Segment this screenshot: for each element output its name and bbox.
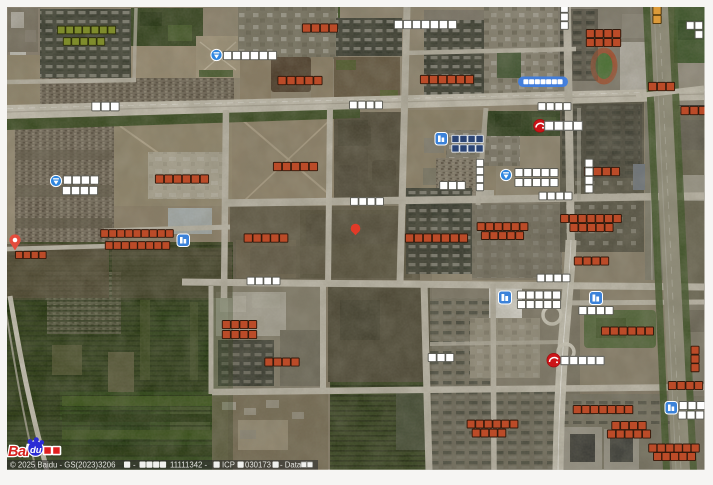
svg-text:© 2025 Baidu - GS(2023)3206: © 2025 Baidu - GS(2023)3206: [10, 460, 115, 469]
svg-text:11111342 -: 11111342 -: [170, 460, 208, 469]
svg-text:-: -: [133, 460, 136, 469]
svg-text:Bai: Bai: [8, 444, 31, 460]
svg-text:ICP: ICP: [222, 460, 235, 469]
svg-text:du: du: [30, 445, 42, 456]
svg-text:030173: 030173: [245, 460, 271, 469]
